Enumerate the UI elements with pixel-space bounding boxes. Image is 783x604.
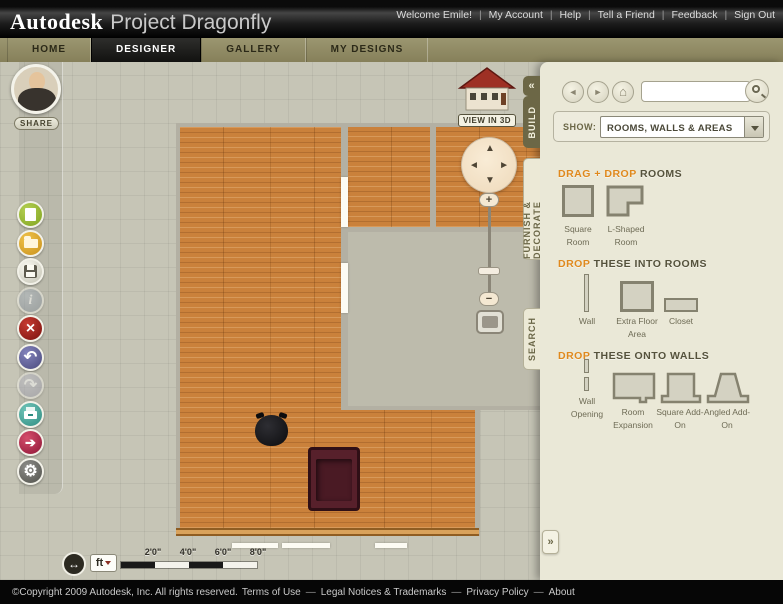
save-disk-icon <box>24 265 37 278</box>
show-label: SHOW: <box>563 122 596 132</box>
arrow-right-icon: ➔ <box>25 436 36 449</box>
search-area <box>641 81 769 102</box>
redo-icon: ↷ <box>24 378 37 394</box>
wall-label: Wall <box>567 315 607 328</box>
scale-ruler <box>120 561 258 569</box>
zoom-slider-handle[interactable] <box>478 267 500 275</box>
heading-rest: THESE INTO ROOMS <box>594 258 707 270</box>
tab-gallery[interactable]: GALLERY <box>201 38 305 62</box>
top-bar: AutodeskProject Dragonfly Welcome Emile!… <box>0 0 783 38</box>
sign-out-link[interactable]: Sign Out <box>734 9 775 21</box>
extra-floor-area-shape[interactable] <box>620 281 654 312</box>
door-opening[interactable] <box>341 263 348 313</box>
armchair-item[interactable] <box>255 415 288 446</box>
l-shaped-room-label: L-Shaped Room <box>600 223 652 249</box>
separator: | <box>724 9 727 21</box>
save-design-button[interactable] <box>17 258 44 285</box>
left-wall <box>176 123 180 536</box>
search-button[interactable] <box>745 79 769 103</box>
gear-icon: ⚙ <box>23 464 37 480</box>
square-room-shape[interactable] <box>562 185 594 217</box>
wall-opening-shape[interactable] <box>584 377 589 391</box>
collapse-panel-button[interactable]: « <box>523 76 540 96</box>
pan-up-icon[interactable]: ▲ <box>485 144 495 154</box>
top-rooms-divider-wall <box>430 123 436 232</box>
interior-horizontal-wall <box>341 227 540 232</box>
section-heading-into-rooms: DROP THESE INTO ROOMS <box>558 258 707 270</box>
terms-of-use-link[interactable]: Terms of Use <box>242 587 301 598</box>
separator: | <box>588 9 591 21</box>
ruler-label: 4'0" <box>180 547 196 557</box>
print-button[interactable] <box>17 401 44 428</box>
about-link[interactable]: About <box>549 587 575 598</box>
pan-right-icon[interactable]: ► <box>499 161 509 171</box>
ruler-segment <box>189 562 223 568</box>
room-extension-floor[interactable] <box>341 410 475 528</box>
app-window: AutodeskProject Dragonfly Welcome Emile!… <box>0 0 783 604</box>
zoom-in-button[interactable]: + <box>479 193 499 207</box>
square-add-on-label: Square Add-On <box>654 406 706 432</box>
tab-designer[interactable]: DESIGNER <box>91 38 201 62</box>
tell-a-friend-link[interactable]: Tell a Friend <box>598 9 655 21</box>
separator: | <box>662 9 665 21</box>
square-room-label: Square Room <box>552 223 604 249</box>
pan-down-icon[interactable]: ▼ <box>485 176 495 186</box>
separator: | <box>479 9 482 21</box>
home-button[interactable]: ⌂ <box>612 81 634 103</box>
view-in-3d-button[interactable]: VIEW IN 3D <box>456 64 520 128</box>
ruler-label: 8'0" <box>250 547 266 557</box>
tab-furnish-decorate-label: FURNISH & DECORATE <box>522 159 542 259</box>
copyright-text: ©Copyright 2009 Autodesk, Inc. All right… <box>12 587 238 598</box>
delete-button[interactable]: × <box>17 315 44 342</box>
ruler-segment <box>121 562 155 568</box>
room-expansion-shape[interactable] <box>612 372 656 404</box>
ruler-label: 6'0" <box>215 547 231 557</box>
unit-dropdown[interactable]: ft <box>90 554 117 572</box>
help-link[interactable]: Help <box>559 9 581 21</box>
search-input[interactable] <box>641 81 751 102</box>
angled-add-on-shape[interactable] <box>706 370 750 404</box>
main-nav: HOME DESIGNER GALLERY MY DESIGNS <box>0 38 783 62</box>
section-heading-onto-walls: DROP THESE ONTO WALLS <box>558 350 709 362</box>
heading-rest: THESE ONTO WALLS <box>594 350 710 362</box>
product-name: Project Dragonfly <box>110 11 271 34</box>
ruler-segment <box>223 562 257 568</box>
l-shaped-room-shape[interactable] <box>606 185 644 217</box>
unfinished-room-bottom-wall <box>341 406 540 410</box>
history-back-button[interactable]: ◄ <box>562 81 584 103</box>
my-account-link[interactable]: My Account <box>489 9 543 21</box>
section-heading-rooms: DRAG + DROP ROOMS <box>558 168 682 180</box>
zoom-out-button[interactable]: − <box>479 292 499 306</box>
privacy-policy-link[interactable]: Privacy Policy <box>466 587 528 598</box>
sofa-item[interactable] <box>308 447 360 511</box>
tab-search[interactable]: SEARCH <box>523 308 540 370</box>
separator: — <box>451 587 461 598</box>
angled-add-on-label: Angled Add-On <box>700 406 754 432</box>
wall-shape[interactable] <box>584 274 589 312</box>
top-middle-room-floor[interactable] <box>348 127 430 227</box>
sofa-seat <box>316 459 352 501</box>
extension-right-wall <box>475 406 480 536</box>
avatar[interactable] <box>11 64 61 114</box>
square-add-on-shape[interactable] <box>660 370 702 404</box>
unit-label: ft <box>96 557 103 569</box>
pan-left-icon[interactable]: ◄ <box>469 161 479 171</box>
show-filter-row: SHOW: ROOMS, WALLS & AREAS <box>553 111 770 142</box>
window-opening[interactable] <box>282 543 330 548</box>
zoom-slider-track[interactable] <box>488 207 491 295</box>
expand-panel-button[interactable]: » <box>542 530 559 554</box>
bottom-wall <box>176 528 479 536</box>
ruler-label: 2'0" <box>145 547 161 557</box>
fit-to-view-button[interactable] <box>476 310 504 334</box>
heading-accent: DROP <box>558 258 590 270</box>
build-panel: « BUILD FURNISH & DECORATE SEARCH ◄ ► ⌂ … <box>540 62 783 580</box>
pan-compass[interactable]: ▲ ▼ ◄ ► <box>461 137 517 193</box>
house-icon <box>456 64 518 114</box>
open-folder-icon <box>24 239 38 248</box>
undo-button[interactable]: ↶ <box>17 344 44 371</box>
chevron-down-icon <box>751 126 759 131</box>
separator: — <box>534 587 544 598</box>
tab-build-label: BUILD <box>527 106 537 139</box>
design-canvas: SHARE i × ↶ ↷ ➔ ⚙ VIEW IN 3D ▲ ▼ ◄ <box>0 62 783 580</box>
legal-notices-link[interactable]: Legal Notices & Trademarks <box>321 587 447 598</box>
ruler-segment <box>155 562 189 568</box>
separator: | <box>550 9 553 21</box>
dropdown-arrow-button[interactable] <box>744 117 763 137</box>
printer-icon <box>24 411 37 419</box>
closet-label: Closet <box>656 315 706 328</box>
undo-icon: ↶ <box>24 350 37 366</box>
closet-shape[interactable] <box>664 298 698 312</box>
feedback-link[interactable]: Feedback <box>671 9 717 21</box>
history-forward-button[interactable]: ► <box>587 81 609 103</box>
view-in-3d-label: VIEW IN 3D <box>458 114 516 127</box>
share-design-button[interactable]: ➔ <box>17 429 44 456</box>
autodesk-logo: Autodesk <box>10 9 103 34</box>
tab-my-designs[interactable]: MY DESIGNS <box>306 38 429 62</box>
user-links: Welcome Emile! | My Account | Help | Tel… <box>396 9 775 21</box>
tab-search-label: SEARCH <box>527 317 537 361</box>
separator: — <box>306 587 316 598</box>
tab-furnish-decorate[interactable]: FURNISH & DECORATE <box>523 158 540 260</box>
logo: AutodeskProject Dragonfly <box>10 9 271 35</box>
heading-rest: ROOMS <box>640 168 682 180</box>
new-document-icon <box>25 208 36 221</box>
settings-button[interactable]: ⚙ <box>17 458 44 485</box>
info-button: i <box>17 287 44 314</box>
open-design-button[interactable] <box>17 230 44 257</box>
search-icon <box>752 85 760 93</box>
welcome-text: Welcome Emile! <box>396 9 472 21</box>
show-dropdown[interactable]: ROOMS, WALLS & AREAS <box>600 116 764 138</box>
footer-bar: ©Copyright 2009 Autodesk, Inc. All right… <box>0 580 783 604</box>
window-opening[interactable] <box>375 543 407 548</box>
share-button[interactable]: SHARE <box>14 117 59 130</box>
door-opening[interactable] <box>341 177 348 227</box>
close-icon: × <box>26 321 35 337</box>
info-icon: i <box>29 294 33 308</box>
show-dropdown-value: ROOMS, WALLS & AREAS <box>607 123 732 134</box>
unfinished-room-floor[interactable] <box>348 232 540 406</box>
wall-opening-shape[interactable] <box>584 359 589 373</box>
tab-home[interactable]: HOME <box>7 38 91 62</box>
redo-button: ↷ <box>17 372 44 399</box>
chevron-down-icon <box>105 561 111 565</box>
heading-accent: DRAG + DROP <box>558 168 637 180</box>
tab-build[interactable]: BUILD <box>523 96 540 148</box>
new-design-button[interactable] <box>17 201 44 228</box>
measure-button[interactable]: ↔ <box>62 552 86 576</box>
